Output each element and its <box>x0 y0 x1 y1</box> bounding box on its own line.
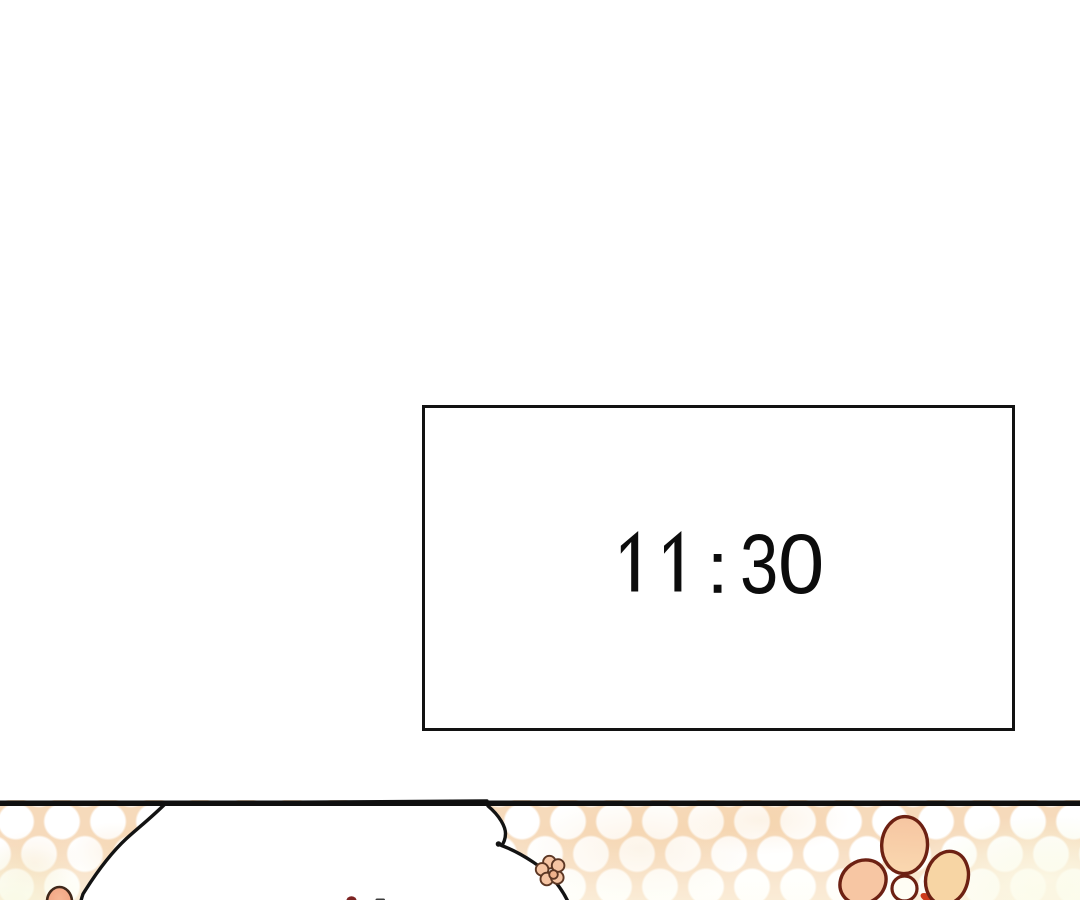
svg-text:3: 3 <box>740 517 778 611</box>
svg-text:0: 0 <box>778 516 824 610</box>
